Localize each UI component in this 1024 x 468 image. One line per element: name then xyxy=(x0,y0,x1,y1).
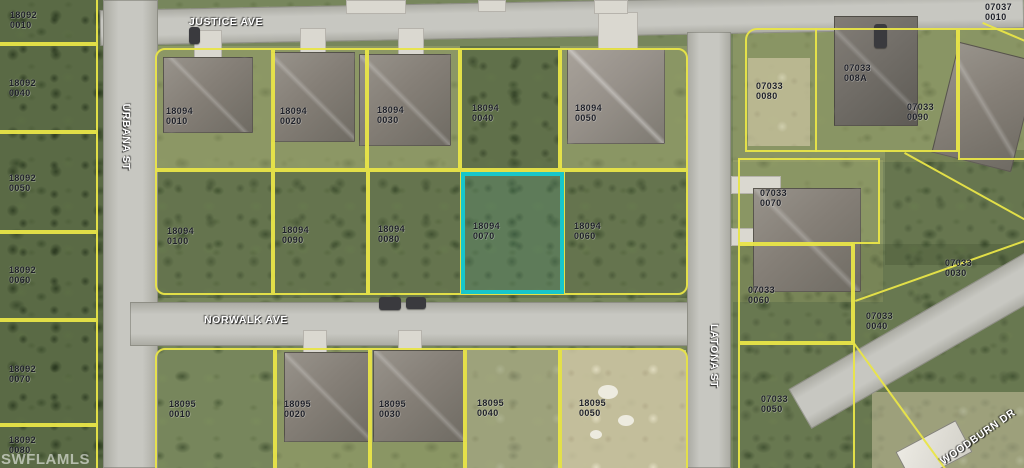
driveway xyxy=(346,0,406,14)
house-roof xyxy=(284,352,372,442)
road-urbana-st xyxy=(103,0,158,468)
parcel-label-18094-0090: 18094 0090 xyxy=(282,226,309,245)
parcel-label-18095-0020: 18095 0020 xyxy=(284,400,311,419)
street-label-latona-st: LATONA ST xyxy=(708,324,720,388)
aerial-parcel-map: 18092 001018092 004018092 005018092 0060… xyxy=(0,0,1024,468)
house-roof xyxy=(271,52,355,142)
house-roof xyxy=(567,48,665,144)
parcel-label-18094-0030: 18094 0030 xyxy=(377,106,404,125)
parcel-label-18094-0070: 18094 0070 xyxy=(473,222,500,241)
parcel-label-18094-0010: 18094 0010 xyxy=(166,107,193,126)
dirt-pile xyxy=(618,415,634,426)
parcel-label-18092-0060: 18092 0060 xyxy=(9,266,36,285)
mls-watermark: SWFLAMLS xyxy=(1,451,90,468)
parcel-label-18094-0020: 18094 0020 xyxy=(280,107,307,126)
parcel-label-18095-0040: 18095 0040 xyxy=(477,399,504,418)
parcel-label-07033-0050: 07033 0050 xyxy=(761,395,788,414)
parcel-label-18092-0050: 18092 0050 xyxy=(9,174,36,193)
driveway xyxy=(594,0,628,14)
parcel-label-07033-0030: 07033 0030 xyxy=(945,259,972,278)
parcel-label-18095-0030: 18095 0030 xyxy=(379,400,406,419)
parcel-label-18095-0010: 18095 0010 xyxy=(169,400,196,419)
parked-vehicle xyxy=(379,297,401,310)
parcel-label-07033-008A: 07033 008A xyxy=(844,64,871,83)
parcel-label-18094-0080: 18094 0080 xyxy=(378,225,405,244)
vegetation-area xyxy=(155,168,688,298)
parcel-label-07033-0080: 07033 0080 xyxy=(756,82,783,101)
street-label-urbana-st: URBANA ST xyxy=(120,104,132,171)
road-latona-st xyxy=(687,32,731,468)
parked-vehicle xyxy=(874,24,887,48)
parcel-label-18094-0040: 18094 0040 xyxy=(472,104,499,123)
house-roof xyxy=(373,350,467,442)
cleared-ground xyxy=(748,58,810,146)
street-label-justice-ave: JUSTICE AVE xyxy=(189,16,263,28)
parcel-label-07033-0090: 07033 0090 xyxy=(907,103,934,122)
parcel-label-18094-0060: 18094 0060 xyxy=(574,222,601,241)
parked-vehicle xyxy=(189,27,200,44)
vegetation-area xyxy=(0,0,104,468)
parcel-label-18094-0100: 18094 0100 xyxy=(167,227,194,246)
parcel-label-07033-0060: 07033 0060 xyxy=(748,286,775,305)
parcel-label-18092-0040: 18092 0040 xyxy=(9,79,36,98)
parcel-label-07033-0070: 07033 0070 xyxy=(760,189,787,208)
parcel-label-07033-0040: 07033 0040 xyxy=(866,312,893,331)
parcel-label-18094-0050: 18094 0050 xyxy=(575,104,602,123)
parcel-label-18095-0050: 18095 0050 xyxy=(579,399,606,418)
house-roof xyxy=(359,54,451,146)
driveway xyxy=(478,0,506,12)
parcel-label-18092-0010: 18092 0010 xyxy=(10,11,37,30)
parcel-label-07037-0010: 07037 0010 xyxy=(985,3,1012,22)
street-label-norwalk-ave: NORWALK AVE xyxy=(204,314,288,326)
parcel-label-18092-0070: 18092 0070 xyxy=(9,365,36,384)
dirt-pile xyxy=(598,385,618,399)
dirt-pile xyxy=(590,430,602,439)
parked-vehicle xyxy=(406,297,426,309)
